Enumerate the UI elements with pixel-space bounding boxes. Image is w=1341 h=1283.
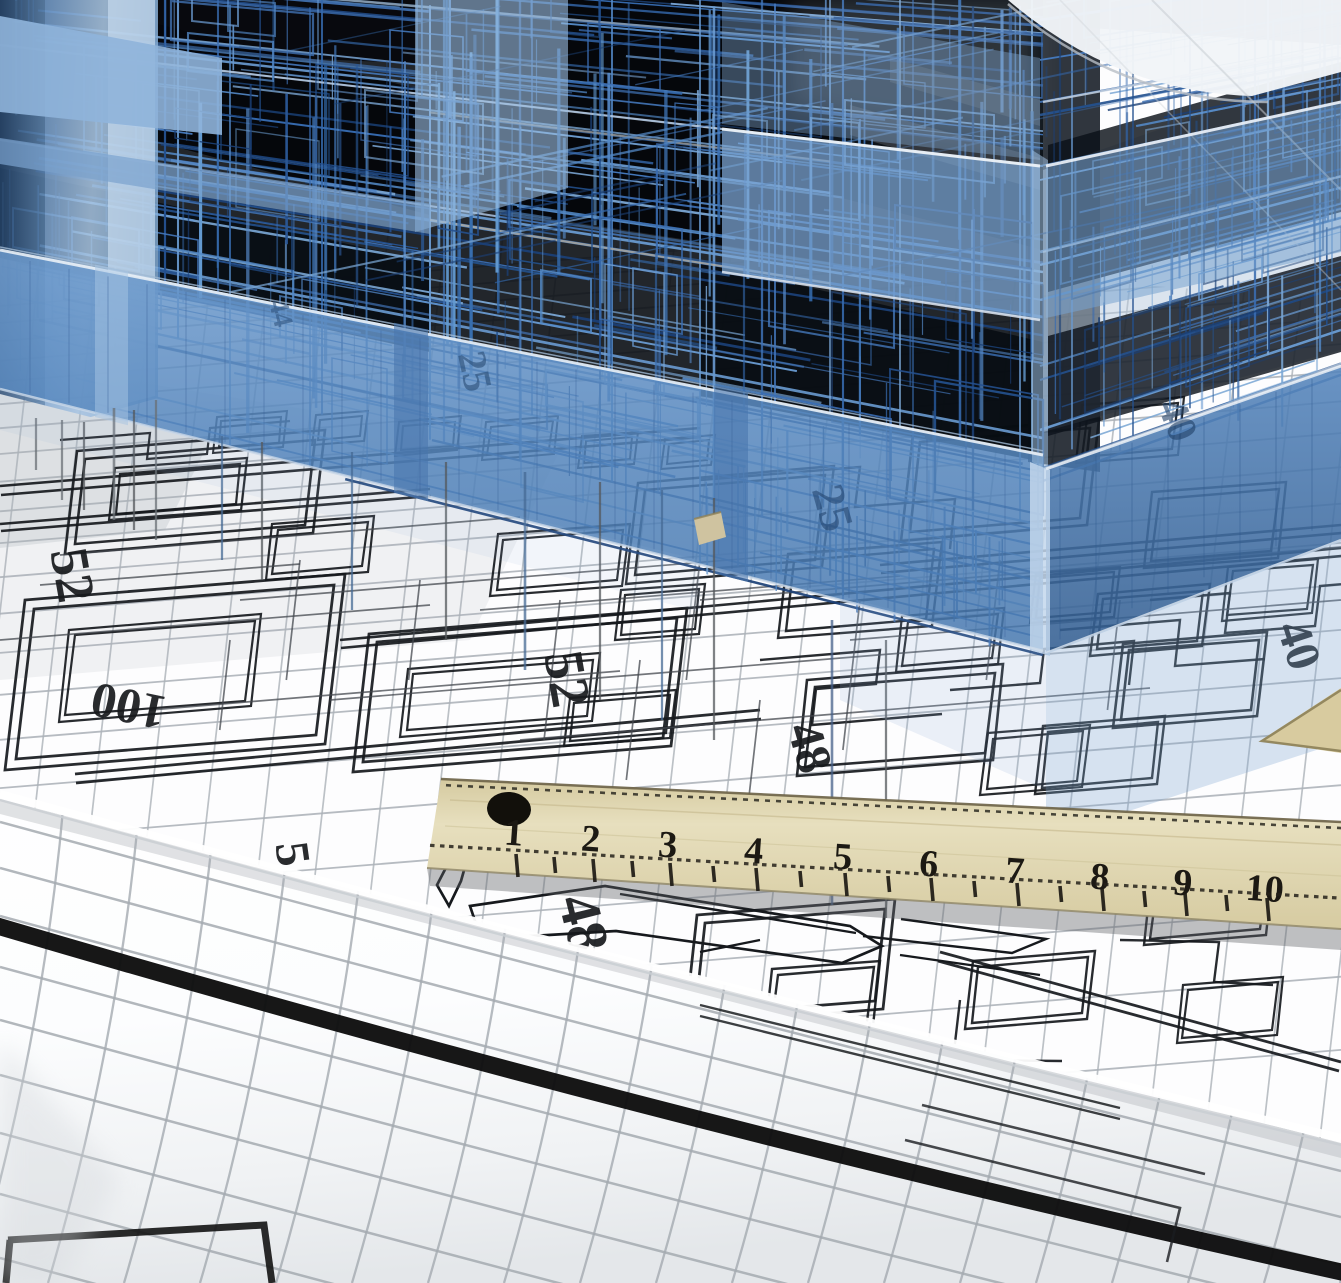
svg-text:52: 52 xyxy=(531,646,602,712)
svg-text:6: 6 xyxy=(918,842,940,885)
svg-text:52: 52 xyxy=(38,543,106,607)
svg-text:8: 8 xyxy=(1089,855,1111,898)
svg-text:10: 10 xyxy=(1244,867,1285,912)
svg-text:9: 9 xyxy=(1172,861,1194,904)
svg-text:4: 4 xyxy=(743,829,765,872)
svg-text:5: 5 xyxy=(832,835,854,878)
svg-text:7: 7 xyxy=(1004,849,1026,892)
